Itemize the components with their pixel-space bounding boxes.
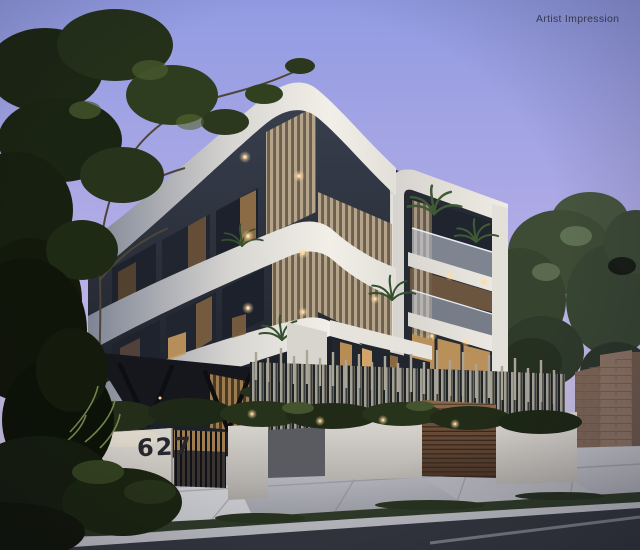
- street-number: 627: [129, 431, 200, 462]
- planter-wall-center: [325, 420, 422, 480]
- entry-pier: [228, 424, 268, 500]
- artist-impression-render: Artist Impression 627: [0, 0, 640, 550]
- walkway-recess: [268, 427, 325, 478]
- artist-impression-label: Artist Impression: [536, 13, 619, 25]
- scene-canvas: [0, 0, 640, 550]
